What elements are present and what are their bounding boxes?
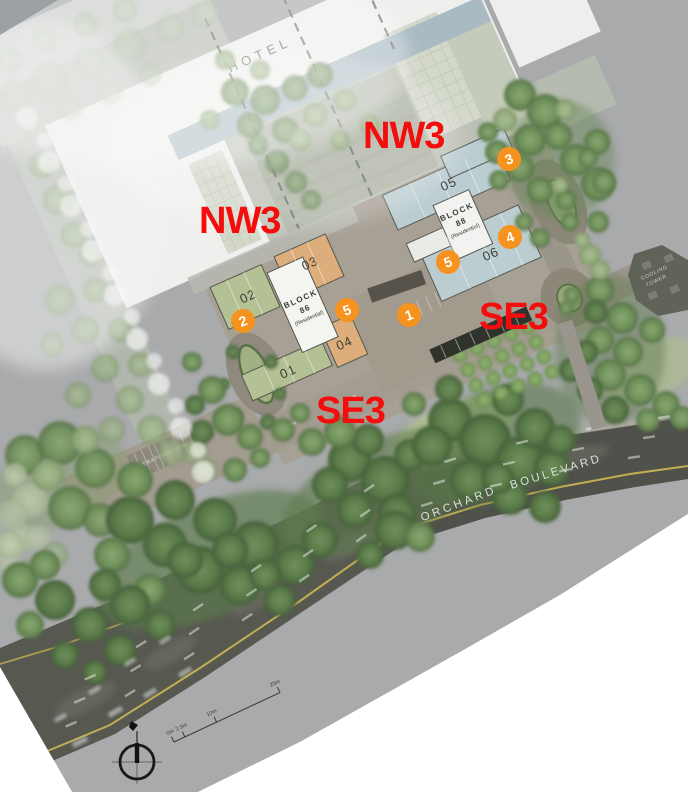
svg-text:NW3: NW3 — [363, 115, 444, 157]
svg-text:SE3: SE3 — [479, 296, 548, 338]
svg-text:NW3: NW3 — [199, 200, 280, 242]
svg-text:SE3: SE3 — [316, 390, 385, 432]
